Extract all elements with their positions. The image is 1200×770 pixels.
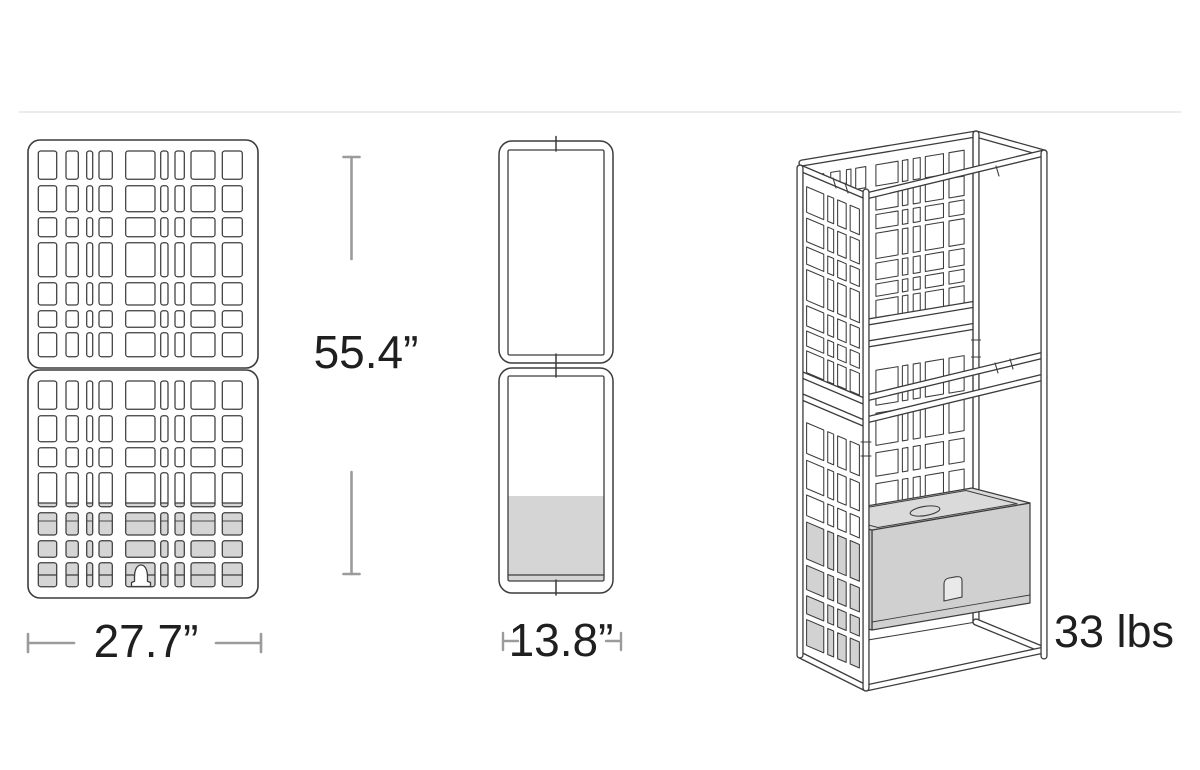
side-panel-bottom <box>499 368 613 593</box>
height-dimension-label: 55.4” <box>314 325 419 379</box>
side-panel-top <box>499 141 613 363</box>
product-dimension-diagram: 55.4” 27.7” 13.8” 33 lbs <box>0 0 1200 770</box>
planter-panel-bottom <box>28 370 258 598</box>
front-view <box>28 140 258 598</box>
side-trellis-face <box>800 168 866 688</box>
side-view <box>499 137 613 596</box>
perspective-view <box>800 134 1044 688</box>
width-dimension-label: 27.7” <box>94 614 199 668</box>
bottom-clip <box>944 577 962 601</box>
trellis-panel-top <box>28 140 258 368</box>
depth-dimension-label: 13.8” <box>509 613 614 667</box>
weight-label: 33 lbs <box>1054 606 1174 658</box>
